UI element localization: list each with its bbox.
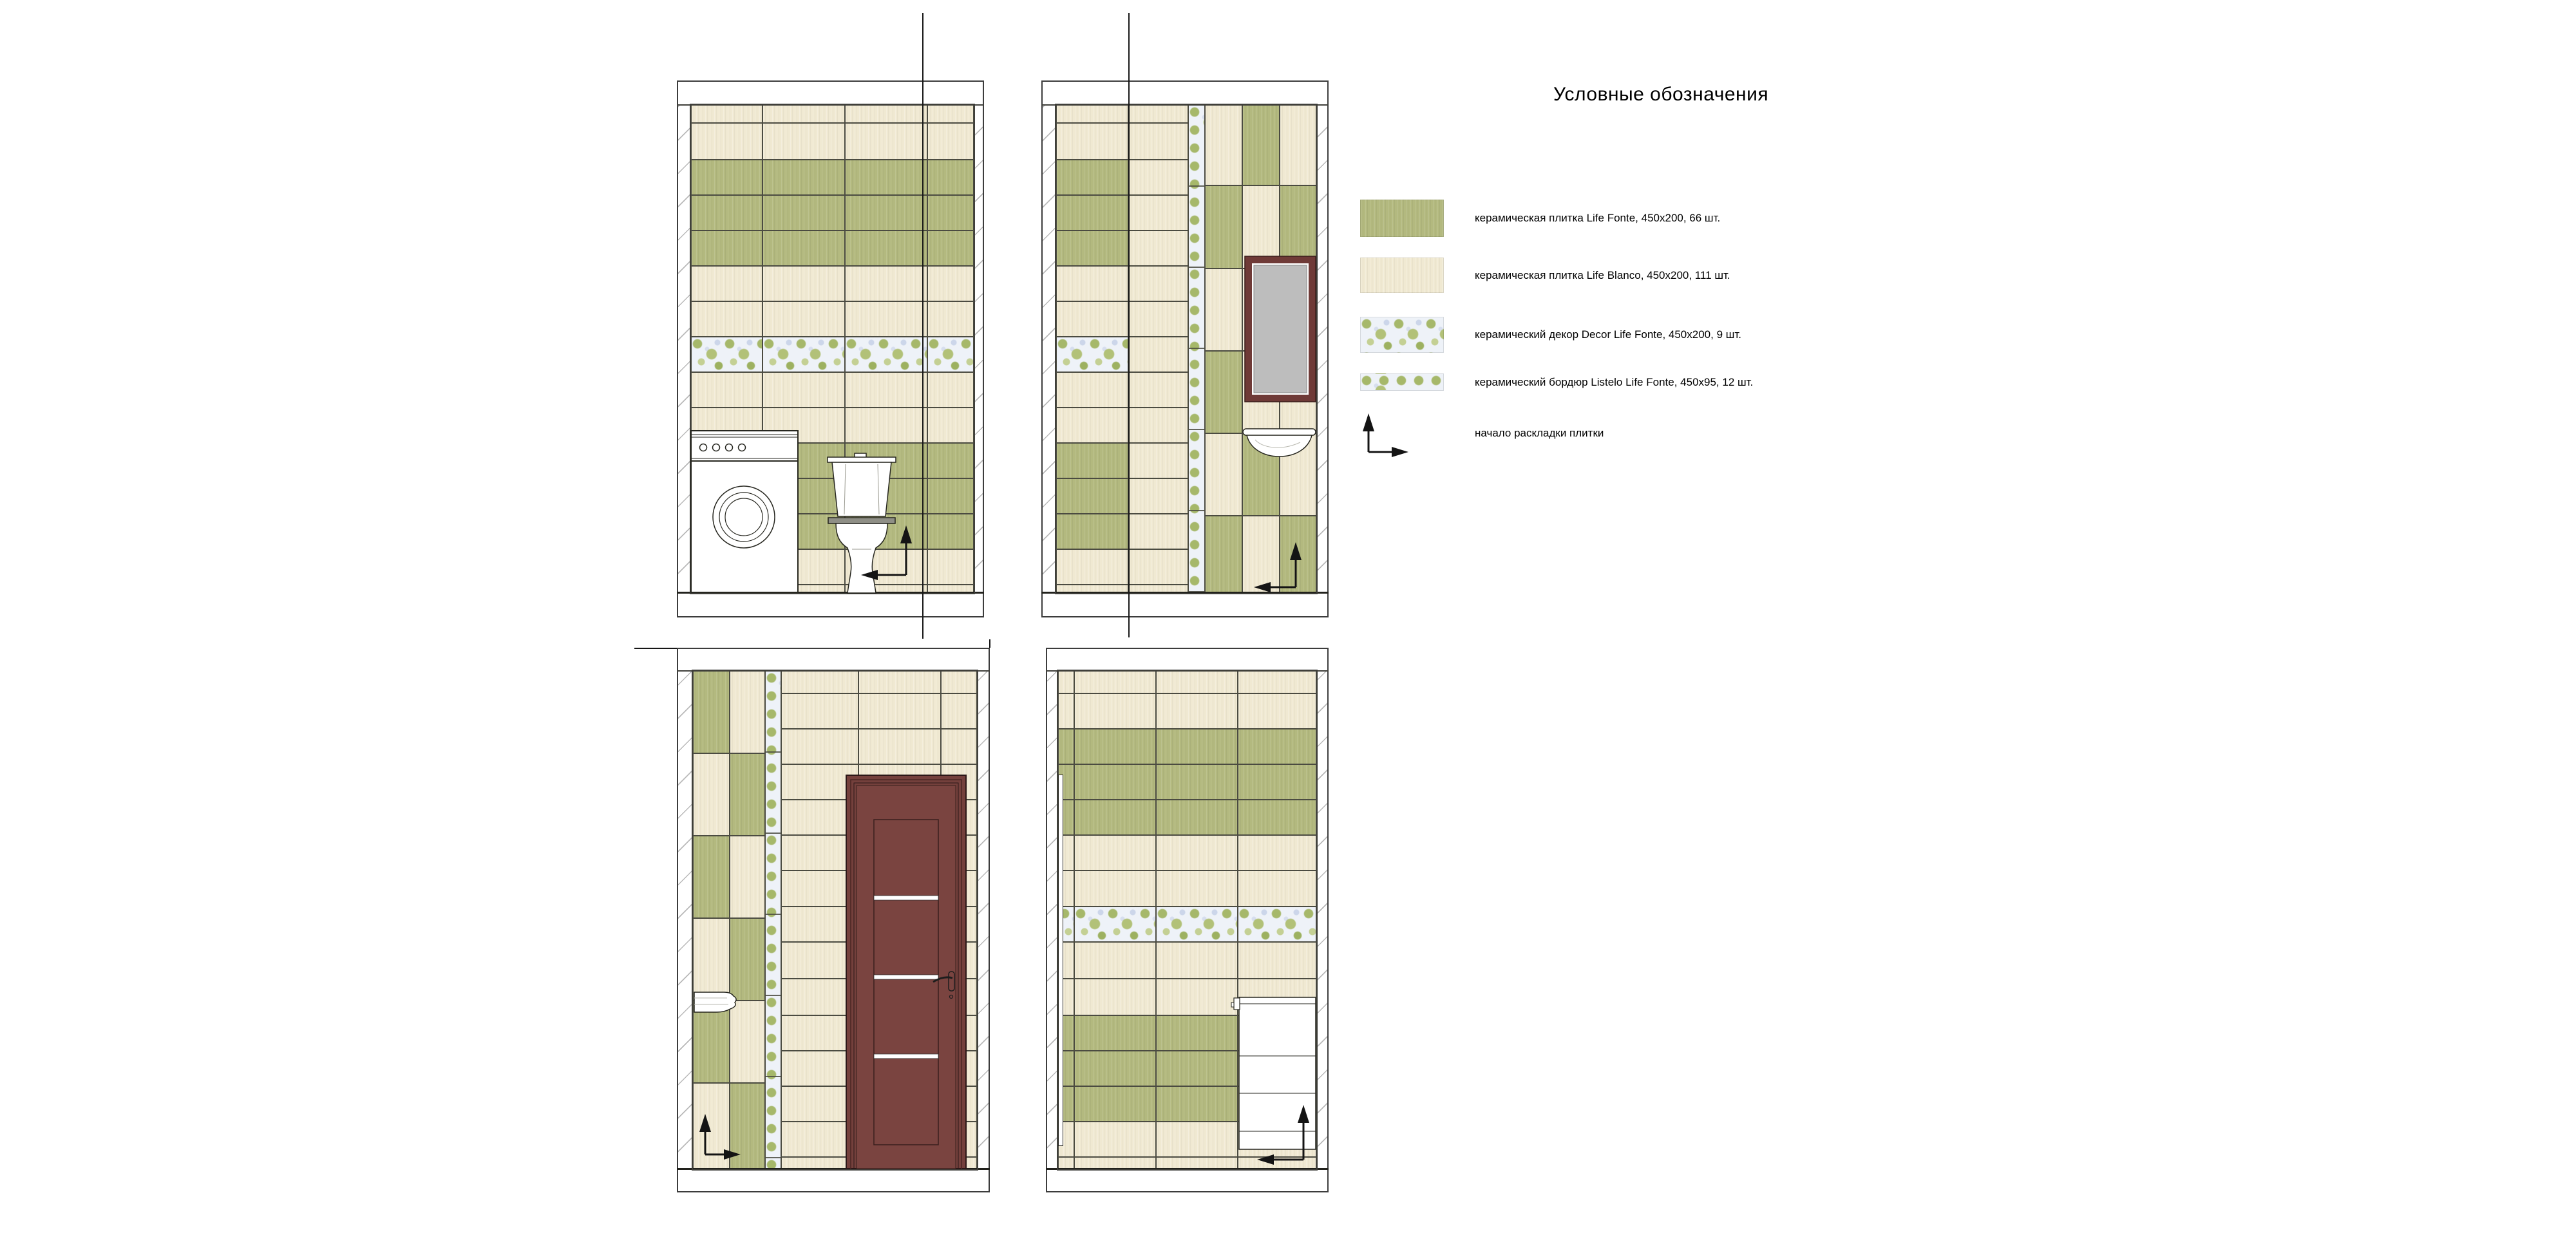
hatch-margin [977, 671, 989, 1169]
legend-item-label: керамическая плитка Life Fonte, 450x200,… [1475, 212, 1720, 225]
legend-swatch-cream [1360, 258, 1444, 293]
tile-layout-drawing: Условные обозначения керамическая плитка… [0, 0, 2576, 1242]
layout-start-arrow-icon [1247, 1102, 1314, 1169]
legend-item-label: керамическая плитка Life Blanco, 450x200… [1475, 269, 1730, 282]
legend-item-label: начало раскладки плитки [1475, 427, 1604, 440]
axis-line [1128, 13, 1130, 637]
layout-start-arrow-icon [1244, 540, 1306, 597]
legend-swatch-green [1360, 200, 1444, 237]
hatch-margin [1043, 105, 1056, 593]
washbasin-side [694, 990, 739, 1015]
legend-start-arrow-icon [1358, 411, 1419, 462]
legend-item-label: керамический бордюр Listelo Life Fonte, … [1475, 376, 1753, 389]
washing-machine [690, 430, 799, 593]
hatch-margin [678, 671, 693, 1169]
door-jamb [1058, 775, 1063, 1146]
axis-line [634, 648, 677, 649]
hatch-margin [678, 105, 691, 593]
axis-line [922, 13, 923, 639]
layout-start-arrow-icon [695, 1111, 751, 1164]
legend-item-label: керамический декор Decor Life Fonte, 450… [1475, 328, 1741, 341]
mirror [1244, 256, 1316, 402]
page-title: Условные обозначения [1553, 84, 1768, 106]
hatch-margin [974, 105, 983, 593]
hatch-margin [1316, 671, 1327, 1169]
legend-swatch-decor [1360, 317, 1444, 353]
door [846, 775, 967, 1169]
layout-start-arrow-icon [851, 523, 916, 585]
legend-swatch-listelo [1360, 373, 1444, 391]
axis-line [989, 639, 990, 648]
hatch-margin [1316, 105, 1327, 593]
washbasin-front [1242, 427, 1316, 458]
